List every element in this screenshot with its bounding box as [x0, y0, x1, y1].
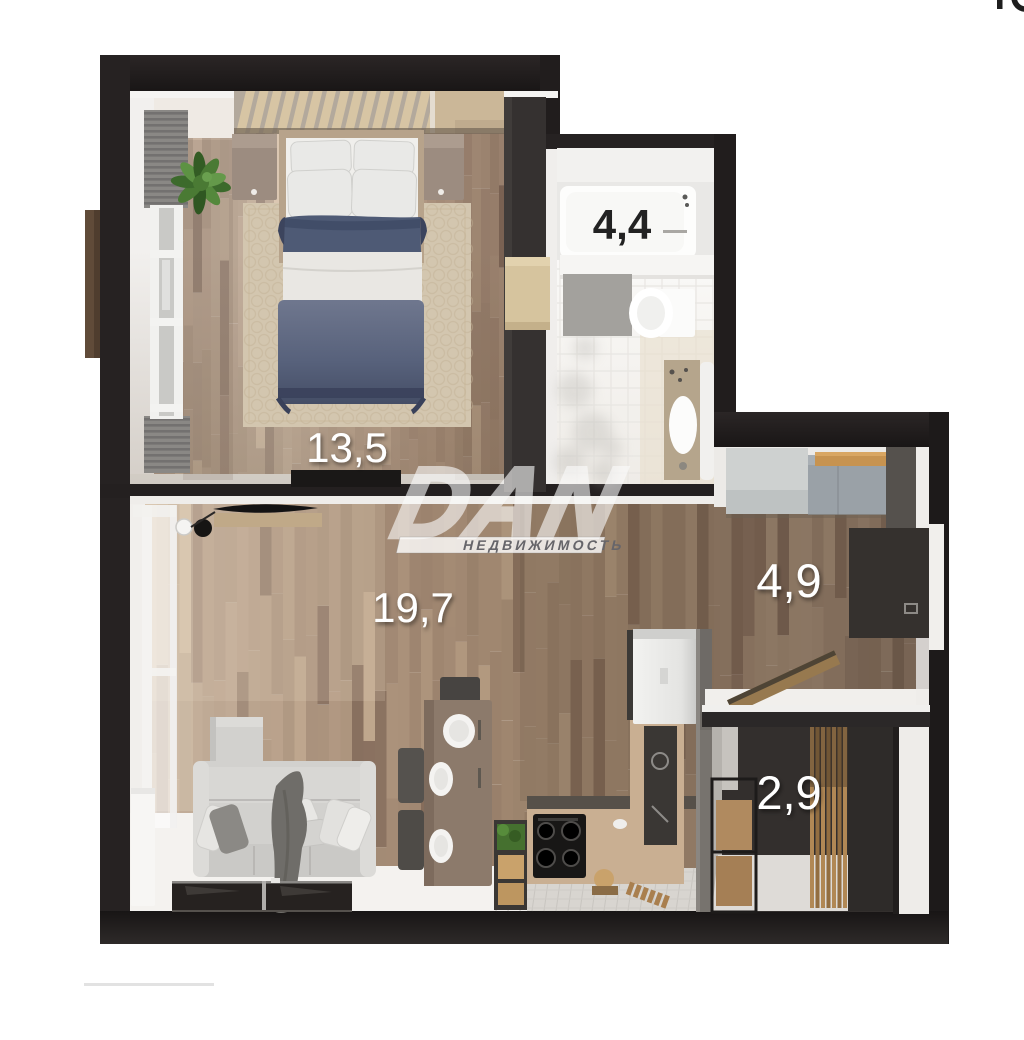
svg-text:2,9: 2,9 [756, 766, 821, 819]
svg-text:4,4: 4,4 [593, 201, 652, 248]
svg-text:НЕДВИЖИМОСТЬ: НЕДВИЖИМОСТЬ [461, 538, 626, 554]
svg-text:19,7: 19,7 [372, 584, 454, 631]
svg-text:4,9: 4,9 [756, 554, 821, 607]
svg-text:13,5: 13,5 [306, 424, 388, 471]
